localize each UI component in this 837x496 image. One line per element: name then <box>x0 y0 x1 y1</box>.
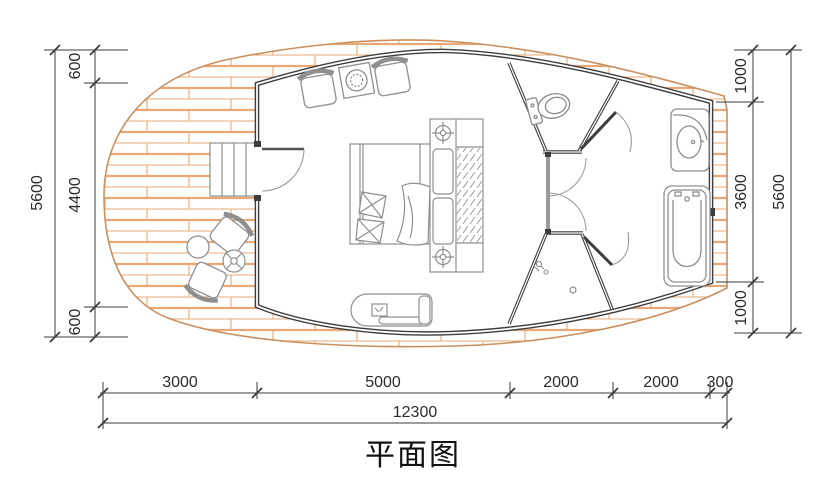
dim-left-1: 4400 <box>67 177 84 213</box>
dim-bottom-total: 12300 <box>393 404 438 421</box>
dim-left-0: 600 <box>67 53 84 80</box>
dim-right-total: 5600 <box>771 174 788 210</box>
bathtub <box>664 186 710 286</box>
dim-left-2: 600 <box>67 309 84 336</box>
bed <box>350 144 432 245</box>
round-table <box>187 236 209 258</box>
dim-bottom-2: 2000 <box>543 374 579 391</box>
steps <box>210 143 256 196</box>
cross-table <box>223 250 245 272</box>
dimensions-right <box>716 45 802 338</box>
floor-plan-sheet: 600 4400 600 5600 1000 3600 1000 5600 30… <box>0 0 837 496</box>
bench <box>351 294 432 326</box>
side-table <box>339 62 375 98</box>
wardrobe <box>430 119 483 272</box>
dim-bottom-1: 5000 <box>365 374 401 391</box>
dim-bottom-3: 2000 <box>643 374 679 391</box>
dim-right-0: 1000 <box>733 58 750 94</box>
floor-plan-drawing: 600 4400 600 5600 1000 3600 1000 5600 30… <box>0 0 837 496</box>
shower-drain <box>570 287 576 293</box>
dim-bottom-4: 300 <box>707 374 734 391</box>
dim-right-1: 3600 <box>733 174 750 210</box>
dim-bottom-0: 3000 <box>162 374 198 391</box>
sink-vanity <box>671 109 709 171</box>
drawing-title: 平面图 <box>303 430 523 474</box>
dim-right-2: 1000 <box>733 290 750 326</box>
dim-left-total: 5600 <box>29 175 46 211</box>
